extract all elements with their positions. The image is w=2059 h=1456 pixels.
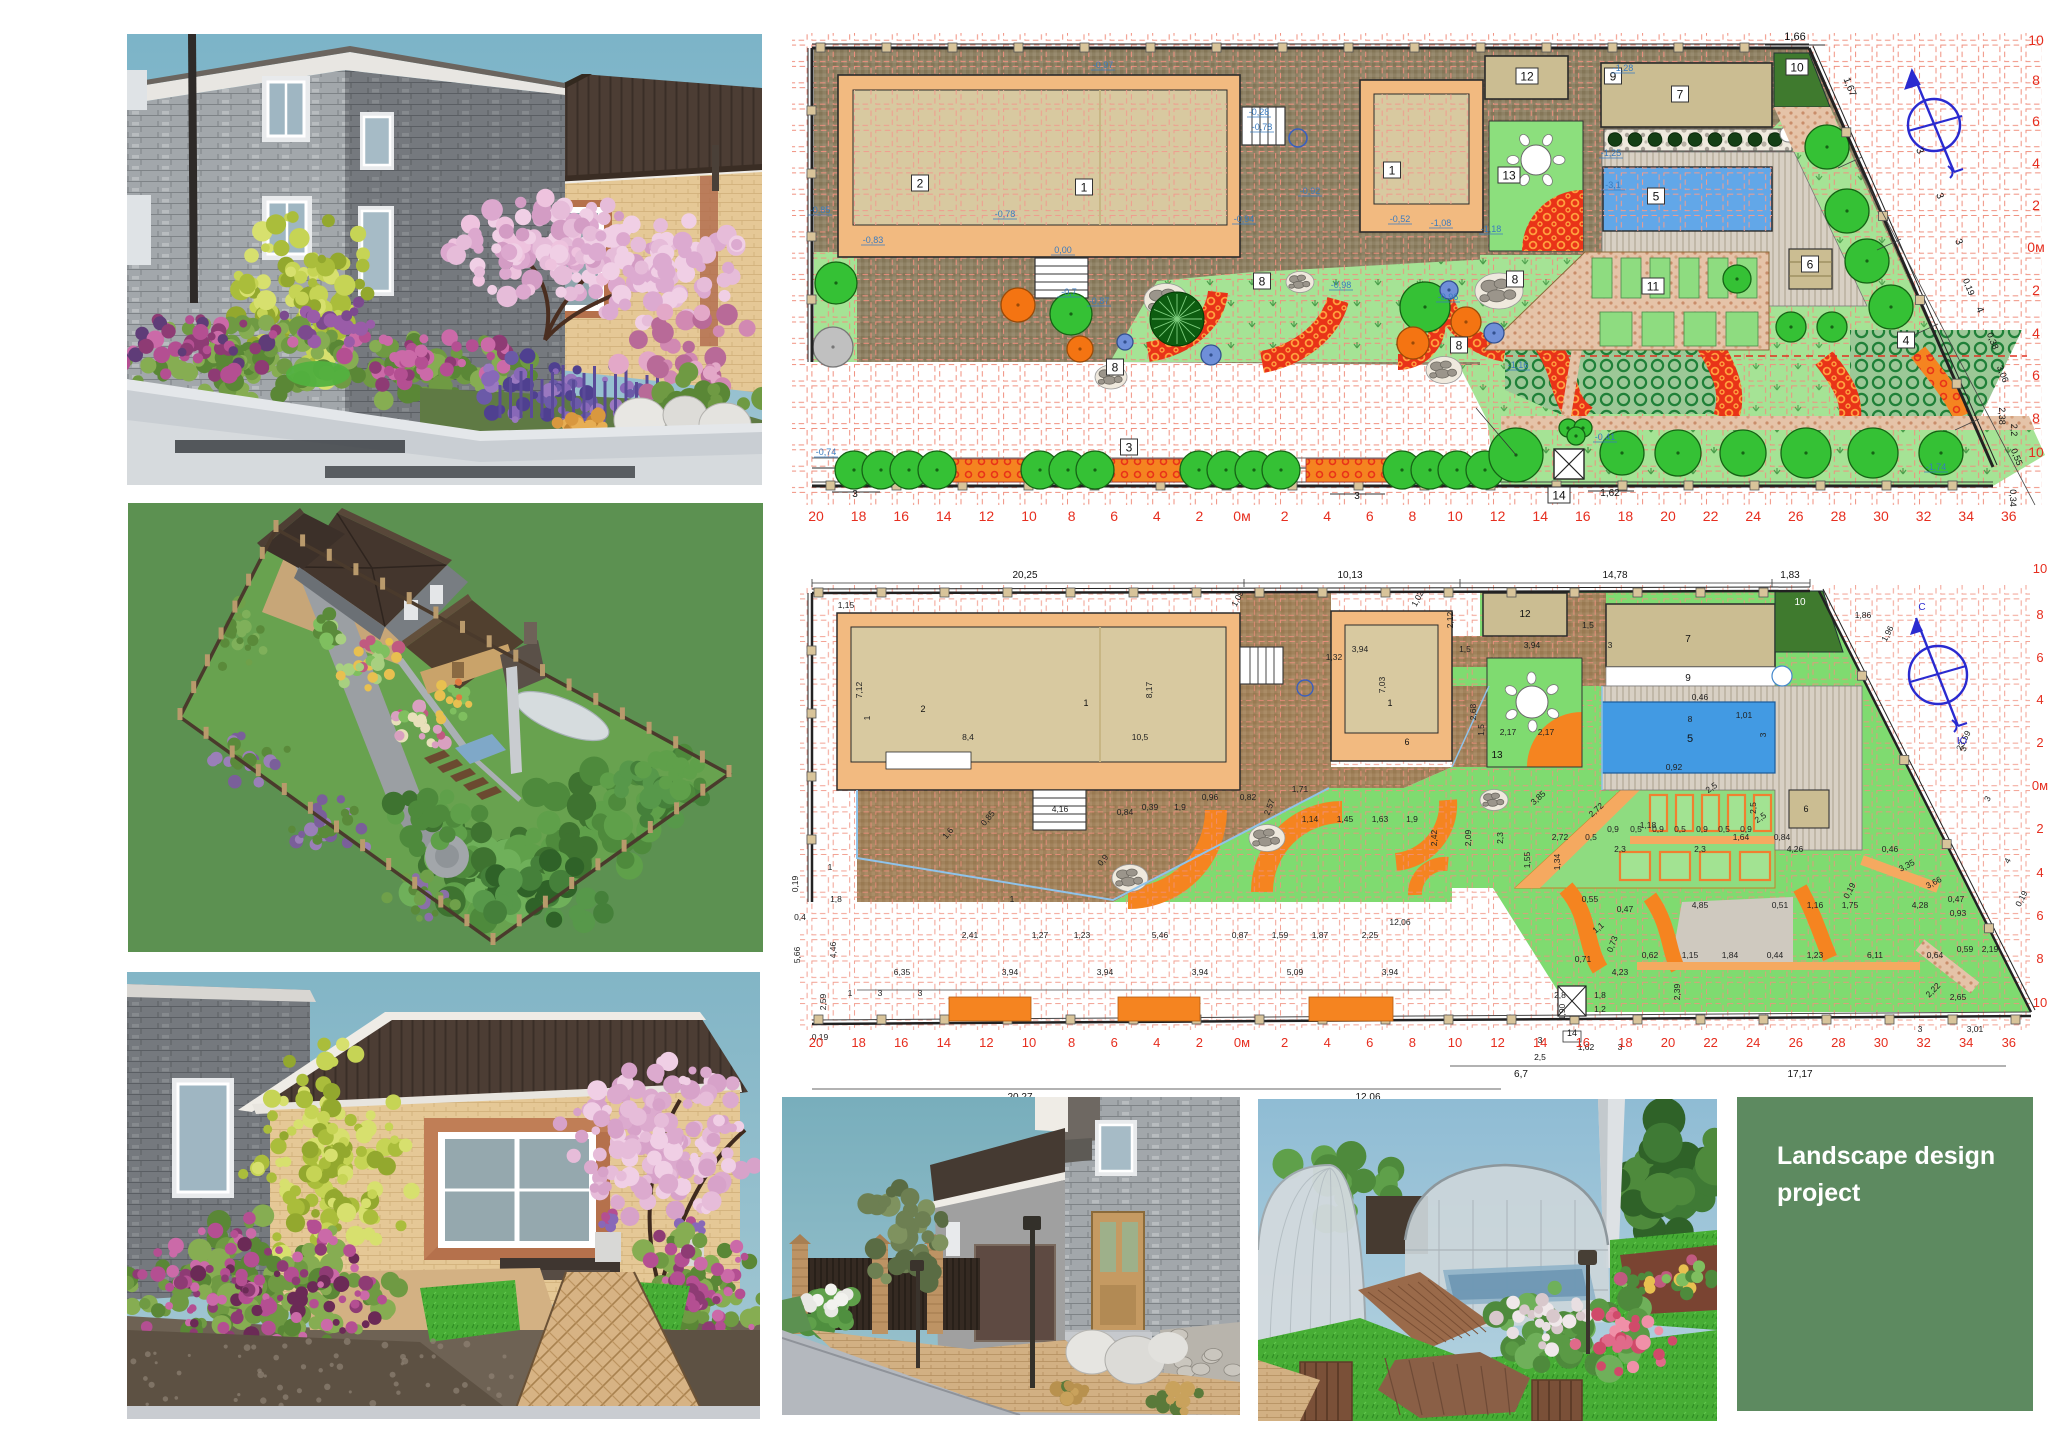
svg-text:1,9: 1,9 [1406, 814, 1418, 824]
svg-text:0,93: 0,93 [1950, 908, 1967, 918]
svg-text:20: 20 [1660, 508, 1676, 524]
svg-text:2,8: 2,8 [1554, 990, 1566, 1000]
svg-text:6,7: 6,7 [1514, 1069, 1528, 1080]
svg-text:4: 4 [2036, 865, 2043, 880]
svg-text:14: 14 [1552, 488, 1566, 502]
svg-text:6: 6 [1803, 804, 1808, 814]
svg-text:1,84: 1,84 [1722, 950, 1739, 960]
svg-text:3: 3 [1918, 1024, 1923, 1034]
svg-text:С: С [1918, 602, 1925, 613]
svg-text:2,68: 2,68 [1468, 703, 1478, 720]
svg-text:-0,28: -0,28 [1249, 107, 1270, 117]
svg-text:1,23: 1,23 [1807, 950, 1824, 960]
svg-text:20: 20 [808, 508, 824, 524]
svg-text:2: 2 [1196, 1035, 1203, 1050]
svg-text:2,5: 2,5 [1534, 1052, 1546, 1062]
svg-text:10: 10 [1022, 1035, 1036, 1050]
svg-text:12: 12 [1490, 1035, 1504, 1050]
svg-text:4: 4 [2032, 155, 2040, 171]
svg-text:1,87: 1,87 [1312, 930, 1329, 940]
svg-text:0,46: 0,46 [1882, 844, 1899, 854]
svg-text:2,3: 2,3 [1614, 844, 1626, 854]
svg-text:2,5: 2,5 [1748, 802, 1758, 814]
svg-text:0м: 0м [2027, 239, 2044, 255]
svg-text:1,9: 1,9 [1174, 802, 1186, 812]
svg-text:14: 14 [1533, 1035, 1547, 1050]
svg-text:0,82: 0,82 [1240, 792, 1257, 802]
svg-text:0,87: 0,87 [1232, 930, 1249, 940]
svg-text:1,45: 1,45 [1337, 814, 1354, 824]
svg-text:0,4: 0,4 [794, 912, 806, 922]
svg-text:12: 12 [1519, 609, 1531, 620]
svg-text:8: 8 [1068, 1035, 1075, 1050]
svg-text:5,66: 5,66 [792, 946, 802, 963]
svg-text:-0,83: -0,83 [863, 235, 884, 245]
svg-text:2: 2 [920, 704, 925, 714]
svg-text:13: 13 [1491, 750, 1503, 761]
svg-text:4: 4 [1324, 1035, 1331, 1050]
svg-text:8: 8 [1068, 508, 1076, 524]
svg-text:6: 6 [1807, 257, 1814, 271]
svg-text:3,01: 3,01 [1967, 1024, 1984, 1034]
svg-text:6: 6 [1366, 1035, 1373, 1050]
svg-text:16: 16 [893, 508, 909, 524]
svg-text:7: 7 [1677, 87, 1684, 101]
svg-text:8: 8 [1409, 508, 1417, 524]
svg-text:16: 16 [1576, 1035, 1590, 1050]
svg-text:22: 22 [1703, 508, 1719, 524]
svg-text:2,65: 2,65 [1950, 992, 1967, 1002]
svg-text:0,51: 0,51 [1772, 900, 1789, 910]
svg-text:16: 16 [1575, 508, 1591, 524]
svg-text:4,26: 4,26 [1787, 844, 1804, 854]
svg-text:4: 4 [1153, 508, 1161, 524]
svg-text:0,47: 0,47 [1617, 904, 1634, 914]
svg-text:17,17: 17,17 [1787, 1069, 1812, 1080]
svg-text:1,32: 1,32 [1326, 652, 1343, 662]
svg-text:2: 2 [917, 176, 924, 190]
svg-text:4,28: 4,28 [1912, 900, 1929, 910]
svg-text:0,34: 0,34 [2008, 489, 2018, 507]
svg-text:-0,74: -0,74 [816, 447, 837, 457]
svg-text:8: 8 [1512, 272, 1519, 286]
svg-text:0м: 0м [1233, 508, 1250, 524]
svg-text:6: 6 [1110, 508, 1118, 524]
svg-text:12: 12 [979, 1035, 993, 1050]
svg-text:Landscape design: Landscape design [1777, 1142, 1995, 1170]
svg-text:10: 10 [1021, 508, 1037, 524]
svg-text:5,46: 5,46 [1152, 930, 1169, 940]
svg-text:2,25: 2,25 [1362, 930, 1379, 940]
svg-text:18: 18 [1618, 1035, 1632, 1050]
svg-text:14: 14 [936, 508, 952, 524]
svg-text:-0,85: -0,85 [810, 205, 831, 215]
svg-text:0,62: 0,62 [1642, 950, 1659, 960]
svg-text:-0,92: -0,92 [1300, 186, 1321, 196]
svg-text:2,42: 2,42 [1429, 829, 1439, 846]
svg-text:1,62: 1,62 [1600, 488, 1620, 499]
svg-text:20,25: 20,25 [1012, 570, 1037, 581]
svg-text:6,11: 6,11 [1867, 950, 1883, 960]
svg-text:36: 36 [2002, 1035, 2016, 1050]
svg-text:6: 6 [1111, 1035, 1118, 1050]
svg-text:10: 10 [2033, 561, 2047, 576]
svg-text:5: 5 [1653, 189, 1660, 203]
svg-text:14,78: 14,78 [1602, 570, 1627, 581]
svg-text:20: 20 [1661, 1035, 1675, 1050]
svg-text:2,12: 2,12 [1445, 611, 1455, 628]
svg-text:2,17: 2,17 [1538, 727, 1555, 737]
svg-text:10,5: 10,5 [1132, 732, 1149, 742]
svg-text:7: 7 [1685, 634, 1691, 645]
svg-text:4: 4 [1903, 333, 1910, 347]
svg-text:0,44: 0,44 [1767, 950, 1784, 960]
svg-text:3: 3 [918, 988, 923, 998]
svg-text:1: 1 [828, 862, 833, 872]
svg-text:-1,08: -1,08 [1431, 218, 1452, 228]
svg-text:0,9: 0,9 [1652, 824, 1664, 834]
svg-text:1,83: 1,83 [1780, 570, 1800, 581]
svg-text:-1,74: -1,74 [1926, 462, 1947, 472]
svg-text:6: 6 [2036, 908, 2043, 923]
svg-text:8: 8 [1409, 1035, 1416, 1050]
svg-text:2,09: 2,09 [1463, 829, 1473, 846]
svg-text:16: 16 [894, 1035, 908, 1050]
svg-text:24: 24 [1746, 1035, 1760, 1050]
svg-text:30: 30 [1874, 1035, 1888, 1050]
svg-text:-0,97: -0,97 [1093, 60, 1114, 70]
svg-text:28: 28 [1831, 1035, 1845, 1050]
svg-text:2: 2 [1196, 508, 1204, 524]
svg-text:3,94: 3,94 [1097, 967, 1114, 977]
svg-text:26: 26 [1789, 1035, 1803, 1050]
svg-text:20: 20 [809, 1035, 823, 1050]
svg-text:26: 26 [1788, 508, 1804, 524]
svg-text:22: 22 [1703, 1035, 1717, 1050]
svg-text:8: 8 [2036, 951, 2043, 966]
svg-text:18: 18 [851, 508, 867, 524]
svg-text:1,2: 1,2 [1594, 1004, 1606, 1014]
svg-text:0,64: 0,64 [1927, 950, 1944, 960]
svg-text:1: 1 [1083, 698, 1088, 708]
svg-text:1,27: 1,27 [1032, 930, 1049, 940]
svg-text:0,59: 0,59 [1957, 944, 1974, 954]
svg-text:36: 36 [2001, 508, 2017, 524]
svg-text:2,19: 2,19 [1982, 944, 1999, 954]
svg-text:0,39: 0,39 [1142, 802, 1159, 812]
svg-text:1,14: 1,14 [1302, 814, 1319, 824]
svg-text:12: 12 [1520, 69, 1534, 83]
svg-text:10: 10 [1448, 1035, 1462, 1050]
svg-text:-0,78: -0,78 [1252, 122, 1273, 132]
svg-text:4,16: 4,16 [1052, 804, 1069, 814]
svg-text:2,17: 2,17 [1500, 727, 1517, 737]
svg-text:2,3: 2,3 [1694, 844, 1706, 854]
svg-text:1,86: 1,86 [1855, 610, 1872, 620]
svg-text:0,5: 0,5 [1718, 824, 1730, 834]
svg-text:3: 3 [852, 489, 858, 500]
svg-text:6: 6 [2032, 367, 2040, 383]
svg-text:3: 3 [1758, 732, 1768, 737]
svg-text:2: 2 [2036, 735, 2043, 750]
svg-text:1: 1 [1389, 163, 1396, 177]
svg-text:8: 8 [1456, 338, 1463, 352]
svg-text:10: 10 [1794, 597, 1806, 608]
svg-text:0,00: 0,00 [1054, 245, 1072, 255]
svg-text:1,15: 1,15 [1682, 950, 1699, 960]
svg-text:0м: 0м [1234, 1035, 1250, 1050]
svg-text:1,5: 1,5 [1582, 620, 1594, 630]
svg-text:2,59: 2,59 [818, 993, 828, 1010]
svg-text:14: 14 [937, 1035, 951, 1050]
svg-text:project: project [1777, 1179, 1861, 1207]
svg-text:0,71: 0,71 [1575, 954, 1592, 964]
svg-text:8: 8 [2036, 607, 2043, 622]
svg-text:10: 10 [2033, 995, 2047, 1010]
svg-text:2: 2 [2036, 821, 2043, 836]
svg-text:1: 1 [848, 988, 853, 998]
svg-text:3,94: 3,94 [1002, 967, 1019, 977]
svg-text:0,9: 0,9 [1607, 824, 1619, 834]
svg-text:1,8: 1,8 [1594, 990, 1606, 1000]
svg-text:5: 5 [1687, 733, 1693, 745]
svg-text:0,5: 0,5 [1630, 824, 1642, 834]
svg-text:32: 32 [1916, 508, 1932, 524]
svg-text:2: 2 [1281, 1035, 1288, 1050]
svg-text:-0,52: -0,52 [1390, 214, 1411, 224]
svg-text:9: 9 [1685, 673, 1691, 684]
svg-text:2,38: 2,38 [1997, 407, 2007, 425]
svg-text:8: 8 [1112, 360, 1119, 374]
svg-text:10: 10 [2028, 444, 2044, 460]
svg-text:0,55: 0,55 [1582, 894, 1599, 904]
svg-text:0,47: 0,47 [1948, 894, 1965, 904]
svg-text:-0,96: -0,96 [1438, 292, 1459, 302]
svg-text:1,5: 1,5 [1459, 644, 1471, 654]
svg-text:34: 34 [1959, 1035, 1973, 1050]
svg-text:1,5: 1,5 [1476, 724, 1486, 736]
svg-text:1,55: 1,55 [1522, 851, 1532, 868]
svg-text:-0,98: -0,98 [1331, 280, 1352, 290]
svg-text:-0,7: -0,7 [1061, 287, 1077, 297]
svg-text:-1,18: -1,18 [1481, 224, 1502, 234]
svg-text:-1,28: -1,28 [1613, 63, 1634, 73]
svg-text:0,84: 0,84 [1774, 832, 1791, 842]
svg-text:0,19: 0,19 [790, 875, 800, 892]
svg-text:12: 12 [1490, 508, 1506, 524]
svg-text:1,63: 1,63 [1372, 814, 1389, 824]
svg-text:12: 12 [979, 508, 995, 524]
svg-text:8,4: 8,4 [962, 732, 974, 742]
svg-text:13: 13 [1502, 168, 1516, 182]
svg-text:2,41: 2,41 [962, 930, 979, 940]
svg-text:18: 18 [1618, 508, 1634, 524]
svg-text:10: 10 [1790, 60, 1804, 74]
svg-text:12,06: 12,06 [1389, 917, 1411, 927]
svg-text:-3,1: -3,1 [1605, 180, 1621, 190]
svg-text:0м: 0м [2032, 778, 2048, 793]
svg-text:4,46: 4,46 [828, 941, 838, 958]
svg-text:8: 8 [1688, 714, 1693, 724]
svg-text:4: 4 [2036, 692, 2043, 707]
svg-text:1: 1 [862, 715, 872, 720]
svg-text:30: 30 [1873, 508, 1889, 524]
svg-text:7,03: 7,03 [1377, 676, 1387, 693]
svg-text:11: 11 [1647, 279, 1660, 293]
svg-text:6,35: 6,35 [894, 967, 911, 977]
svg-text:2,2: 2,2 [2009, 424, 2019, 437]
svg-text:1,8: 1,8 [830, 894, 842, 904]
svg-text:34: 34 [1958, 508, 1974, 524]
svg-text:14: 14 [1532, 508, 1548, 524]
svg-text:1,90: 1,90 [1557, 1003, 1567, 1020]
svg-text:1,23: 1,23 [1074, 930, 1091, 940]
svg-text:3,94: 3,94 [1382, 967, 1399, 977]
svg-text:6: 6 [1366, 508, 1374, 524]
svg-text:-0,41: -0,41 [1595, 432, 1616, 442]
svg-text:4: 4 [1323, 508, 1331, 524]
svg-text:3: 3 [1354, 491, 1360, 502]
svg-text:1,71: 1,71 [1292, 784, 1309, 794]
svg-text:1: 1 [1387, 698, 1392, 708]
svg-text:8,17: 8,17 [1144, 681, 1154, 698]
svg-text:5,09: 5,09 [1287, 967, 1304, 977]
svg-text:1,01: 1,01 [1736, 710, 1753, 720]
svg-text:3: 3 [878, 988, 883, 998]
svg-text:6: 6 [1404, 737, 1409, 747]
svg-text:6: 6 [2036, 650, 2043, 665]
svg-text:3,94: 3,94 [1352, 644, 1369, 654]
svg-text:1,66: 1,66 [1784, 31, 1805, 43]
svg-text:0,46: 0,46 [1692, 692, 1709, 702]
svg-text:2,72: 2,72 [1552, 832, 1569, 842]
svg-text:4: 4 [1153, 1035, 1160, 1050]
svg-text:0,96: 0,96 [1202, 792, 1219, 802]
svg-text:10: 10 [2028, 32, 2044, 48]
svg-text:4: 4 [2032, 325, 2040, 341]
svg-text:-1,16: -1,16 [1508, 360, 1529, 370]
svg-text:-0,94: -0,94 [1234, 214, 1255, 224]
svg-text:8: 8 [1259, 274, 1266, 288]
svg-text:2: 2 [1281, 508, 1289, 524]
svg-text:1,34: 1,34 [1552, 853, 1562, 870]
svg-text:-0,87: -0,87 [1089, 296, 1110, 306]
svg-text:1: 1 [1081, 180, 1088, 194]
svg-text:3,94: 3,94 [1524, 640, 1541, 650]
svg-text:3: 3 [1126, 440, 1133, 454]
svg-text:7,12: 7,12 [854, 681, 864, 698]
svg-text:4,23: 4,23 [1612, 967, 1629, 977]
svg-text:28: 28 [1831, 508, 1847, 524]
svg-text:1,75: 1,75 [1842, 900, 1859, 910]
svg-text:0,5: 0,5 [1674, 824, 1686, 834]
svg-text:0,9: 0,9 [1696, 824, 1708, 834]
svg-text:-0,78: -0,78 [995, 209, 1016, 219]
svg-text:2,3: 2,3 [1495, 832, 1505, 844]
svg-text:2: 2 [2032, 282, 2040, 298]
svg-text:8: 8 [2032, 72, 2040, 88]
svg-text:3,94: 3,94 [1192, 967, 1209, 977]
svg-text:1,59: 1,59 [1272, 930, 1289, 940]
svg-text:10: 10 [1447, 508, 1463, 524]
svg-text:10,13: 10,13 [1337, 570, 1362, 581]
svg-text:2: 2 [2032, 197, 2040, 213]
svg-text:6: 6 [2032, 113, 2040, 129]
svg-text:32: 32 [1916, 1035, 1930, 1050]
svg-text:0,9: 0,9 [1740, 824, 1752, 834]
svg-text:1,15: 1,15 [838, 600, 855, 610]
svg-text:1,16: 1,16 [1807, 900, 1824, 910]
svg-text:0,92: 0,92 [1666, 762, 1683, 772]
svg-text:0,5: 0,5 [1585, 832, 1597, 842]
svg-text:24: 24 [1745, 508, 1761, 524]
svg-text:2,39: 2,39 [1672, 983, 1682, 1000]
svg-text:1: 1 [1010, 894, 1015, 904]
svg-text:-1,25: -1,25 [1601, 148, 1622, 158]
svg-text:Ю: Ю [1957, 736, 1967, 747]
svg-text:0,84: 0,84 [1117, 807, 1134, 817]
svg-text:8: 8 [2032, 410, 2040, 426]
svg-text:18: 18 [851, 1035, 865, 1050]
svg-text:3: 3 [1608, 640, 1613, 650]
svg-text:4,85: 4,85 [1692, 900, 1709, 910]
